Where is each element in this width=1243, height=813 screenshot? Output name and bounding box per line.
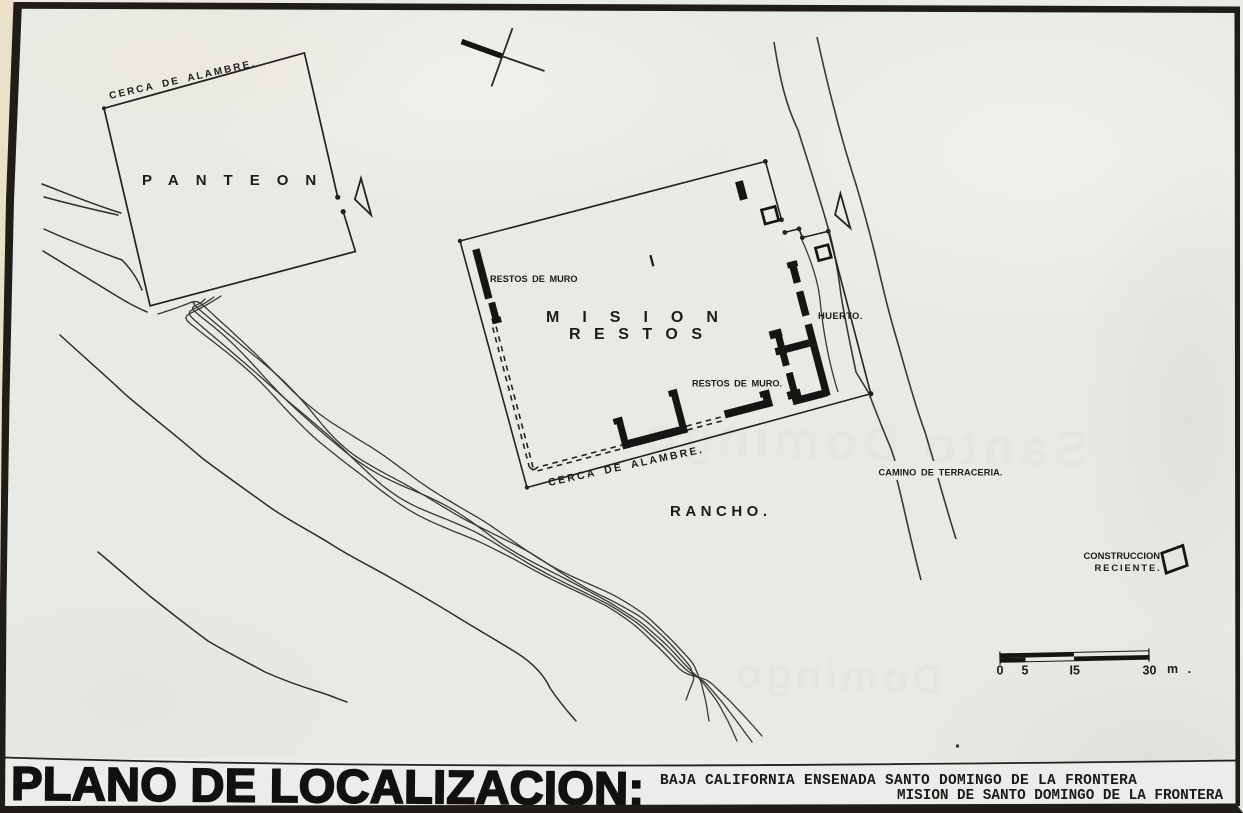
svg-text:CONSTRUCCION: CONSTRUCCION [1084, 550, 1161, 561]
svg-text:HUERTO.: HUERTO. [818, 311, 863, 322]
svg-text:PLANO DE LOCALIZACION:: PLANO DE LOCALIZACION: [11, 757, 645, 813]
svg-text:Domingo: Domingo [732, 649, 943, 703]
svg-text:BAJA CALIFORNIA ENSENADA SAN: BAJA CALIFORNIA ENSENADA SANTO DOMINGO D… [660, 773, 1137, 789]
svg-text:I5: I5 [1070, 664, 1080, 678]
svg-text:PANTEON: PANTEON [142, 172, 333, 189]
svg-text:RESTOS DE MURO.: RESTOS DE MURO. [692, 379, 782, 389]
svg-text:RESTOS DE MURO: RESTOS DE MURO [490, 274, 578, 284]
svg-text:MISION DE SANTO DOMINGO DE LA: MISION DE SANTO DOMINGO DE LA FRONTERA [897, 788, 1223, 804]
svg-text:CAMINO DE TERRACERIA.: CAMINO DE TERRACERIA. [879, 468, 1003, 478]
svg-text:RANCHO.: RANCHO. [670, 503, 772, 520]
svg-text:30: 30 [1143, 664, 1157, 678]
svg-text:RECIENTE.: RECIENTE. [1095, 562, 1162, 573]
svg-text:5: 5 [1022, 664, 1029, 678]
svg-text:MISION: MISION [546, 309, 741, 326]
svg-text:m .: m . [1167, 662, 1194, 676]
svg-text:RESTOS: RESTOS [569, 326, 716, 343]
svg-text:0: 0 [997, 664, 1004, 678]
